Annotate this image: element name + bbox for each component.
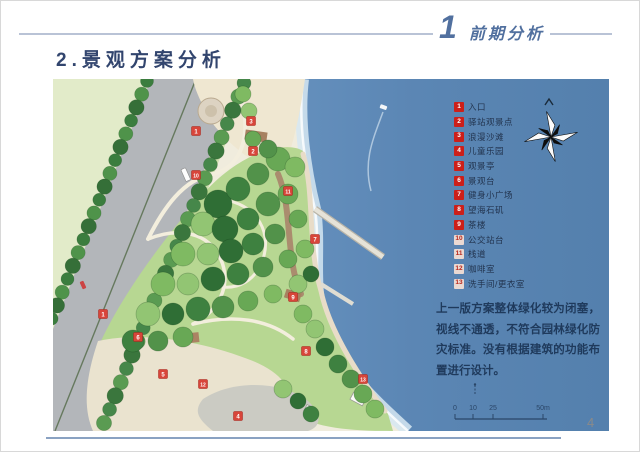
legend-label: 观景亭: [468, 160, 495, 172]
legend-label: 栈道: [468, 248, 486, 260]
header-rule-right: [550, 33, 612, 35]
svg-text:50m: 50m: [536, 405, 550, 412]
svg-text:10: 10: [193, 173, 199, 179]
header-rule-left: [19, 33, 433, 35]
legend-marker-icon: 5: [454, 161, 464, 171]
legend-marker-icon: 6: [454, 176, 464, 186]
legend-marker-icon: 11: [454, 249, 464, 259]
north-mark-icon: [545, 99, 553, 105]
legend-item: 5 观景亭: [454, 159, 525, 174]
legend-label: 浪漫沙滩: [468, 131, 504, 143]
section-title: 前期分析: [469, 20, 545, 44]
legend-label: 景观台: [468, 175, 495, 187]
analysis-note: 上一版方案整体绿化较为闭塞，视线不通透，不符合园林绿化防灾标准。没有根据建筑的功…: [436, 299, 600, 382]
page-number: 4: [587, 415, 594, 430]
svg-text:13: 13: [360, 377, 366, 383]
legend-item: 7 健身小广场: [454, 188, 525, 203]
svg-text:11: 11: [285, 189, 291, 195]
legend-item: 11 栈道: [454, 247, 525, 262]
scale-ticks: [455, 414, 543, 419]
legend-label: 咖啡室: [468, 263, 495, 275]
footer-rule: [46, 437, 561, 439]
scale-bar: 0102550m: [451, 383, 561, 427]
legend-item: 8 望海石矶: [454, 203, 525, 218]
legend-marker-icon: 2: [454, 117, 464, 127]
legend-item: 3 浪漫沙滩: [454, 129, 525, 144]
legend-item: 9 茶楼: [454, 218, 525, 233]
legend-marker-icon: 8: [454, 205, 464, 215]
svg-text:25: 25: [489, 405, 497, 412]
scale-pointer-dot: [474, 383, 476, 385]
legend-marker-icon: 12: [454, 264, 464, 274]
legend-label: 茶楼: [468, 219, 486, 231]
legend-label: 驿站观景点: [468, 116, 513, 128]
legend-label: 洗手间/更衣室: [468, 278, 525, 290]
legend-marker-icon: 4: [454, 146, 464, 156]
legend-label: 入口: [468, 101, 486, 113]
compass-rose-icon: [523, 97, 579, 169]
page-title: 2.景观方案分析: [56, 45, 226, 72]
presentation-slide: 1 前期分析 2.景观方案分析: [0, 0, 640, 452]
section-number: 1: [439, 9, 457, 46]
legend-item: 6 景观台: [454, 173, 525, 188]
legend-label: 健身小广场: [468, 189, 513, 201]
legend-marker-icon: 1: [454, 102, 464, 112]
legend-marker-icon: 3: [454, 132, 464, 142]
legend-marker-icon: 9: [454, 220, 464, 230]
svg-text:10: 10: [469, 405, 477, 412]
svg-text:0: 0: [453, 405, 457, 412]
legend-label: 望海石矶: [468, 204, 504, 216]
svg-text:12: 12: [200, 382, 206, 388]
map-legend: 1 入口 2 驿站观景点 3 浪漫沙滩 4 儿童乐园 5 观景亭: [454, 100, 525, 291]
legend-item: 2 驿站观景点: [454, 115, 525, 130]
legend-marker-icon: 10: [454, 235, 464, 245]
legend-item: 1 入口: [454, 100, 525, 115]
scale-labels: 0102550m: [453, 405, 550, 412]
legend-item: 4 儿童乐园: [454, 144, 525, 159]
legend-label: 儿童乐园: [468, 145, 504, 157]
legend-item: 13 洗手间/更衣室: [454, 276, 525, 291]
legend-marker-icon: 7: [454, 190, 464, 200]
legend-marker-icon: 13: [454, 279, 464, 289]
legend-item: 12 咖啡室: [454, 262, 525, 277]
legend-item: 10 公交站台: [454, 232, 525, 247]
site-plan-map: 131021179165124813 1 入口 2 驿站观景点 3 浪漫沙滩 4…: [53, 79, 609, 431]
legend-label: 公交站台: [468, 234, 504, 246]
entry-plaza-center: [205, 105, 217, 117]
